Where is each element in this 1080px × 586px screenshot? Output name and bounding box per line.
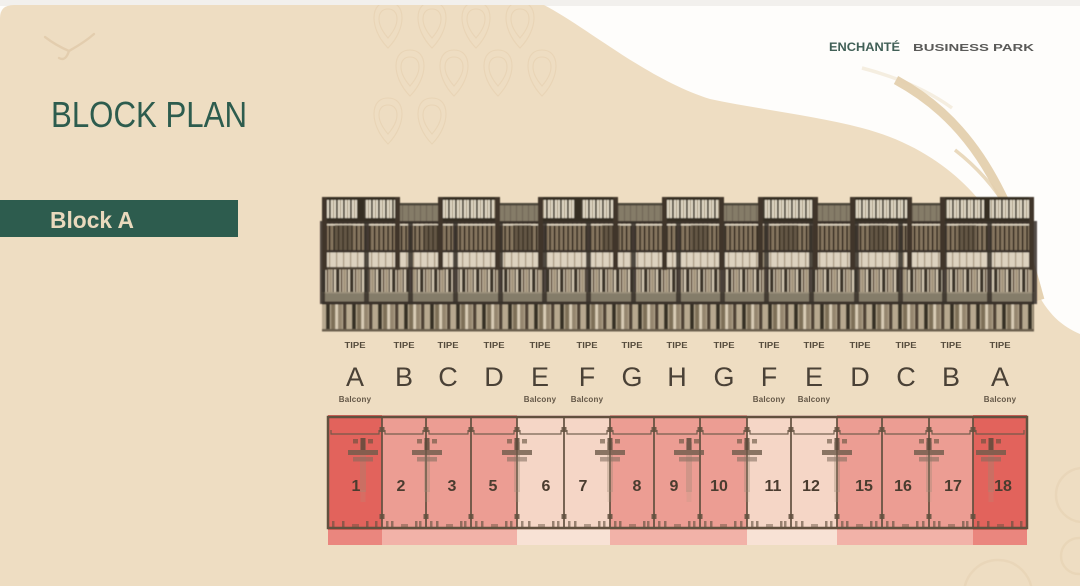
- svg-text:F: F: [761, 362, 778, 392]
- svg-text:TIPE: TIPE: [990, 341, 1012, 350]
- svg-text:TIPE: TIPE: [622, 341, 644, 350]
- svg-text:5: 5: [489, 478, 498, 495]
- svg-text:H: H: [667, 362, 687, 392]
- svg-text:Balcony: Balcony: [524, 395, 557, 404]
- svg-text:Balcony: Balcony: [798, 395, 831, 404]
- svg-text:TIPE: TIPE: [667, 341, 689, 350]
- svg-text:C: C: [896, 362, 916, 392]
- svg-text:TIPE: TIPE: [759, 341, 781, 350]
- svg-text:15: 15: [855, 478, 873, 495]
- svg-text:Balcony: Balcony: [339, 395, 372, 404]
- svg-text:Balcony: Balcony: [753, 395, 786, 404]
- svg-text:TIPE: TIPE: [394, 341, 416, 350]
- svg-text:11: 11: [765, 478, 782, 495]
- svg-text:A: A: [991, 362, 1009, 392]
- svg-text:TIPE: TIPE: [530, 341, 552, 350]
- svg-text:TIPE: TIPE: [484, 341, 506, 350]
- svg-text:D: D: [484, 362, 504, 392]
- svg-text:B: B: [942, 362, 960, 392]
- svg-text:BLOCK PLAN: BLOCK PLAN: [51, 94, 247, 135]
- svg-text:TIPE: TIPE: [850, 341, 872, 350]
- svg-text:TIPE: TIPE: [345, 341, 367, 350]
- svg-text:C: C: [438, 362, 458, 392]
- svg-text:G: G: [621, 362, 642, 392]
- svg-text:E: E: [805, 362, 823, 392]
- svg-text:Balcony: Balcony: [984, 395, 1017, 404]
- svg-text:F: F: [579, 362, 596, 392]
- svg-text:9: 9: [670, 478, 679, 495]
- svg-text:TIPE: TIPE: [714, 341, 736, 350]
- svg-text:TIPE: TIPE: [941, 341, 963, 350]
- svg-text:1: 1: [352, 478, 361, 495]
- svg-text:8: 8: [633, 478, 642, 495]
- svg-text:7: 7: [579, 478, 588, 495]
- svg-text:Block A: Block A: [50, 207, 134, 233]
- svg-text:D: D: [850, 362, 870, 392]
- svg-text:ENCHANTÉ: ENCHANTÉ: [829, 41, 900, 54]
- svg-text:Balcony: Balcony: [571, 395, 604, 404]
- svg-text:BUSINESS PARK: BUSINESS PARK: [913, 43, 1035, 54]
- svg-text:6: 6: [542, 478, 551, 495]
- svg-text:17: 17: [944, 478, 962, 495]
- svg-text:E: E: [531, 362, 549, 392]
- svg-text:TIPE: TIPE: [438, 341, 460, 350]
- svg-text:A: A: [346, 362, 364, 392]
- svg-text:18: 18: [994, 478, 1012, 495]
- svg-text:3: 3: [448, 478, 457, 495]
- svg-text:G: G: [713, 362, 734, 392]
- svg-text:16: 16: [894, 478, 912, 495]
- svg-text:TIPE: TIPE: [577, 341, 599, 350]
- svg-text:TIPE: TIPE: [804, 341, 826, 350]
- svg-text:TIPE: TIPE: [896, 341, 918, 350]
- svg-text:B: B: [395, 362, 413, 392]
- svg-text:12: 12: [802, 478, 820, 495]
- svg-text:2: 2: [397, 478, 406, 495]
- svg-text:10: 10: [710, 478, 728, 495]
